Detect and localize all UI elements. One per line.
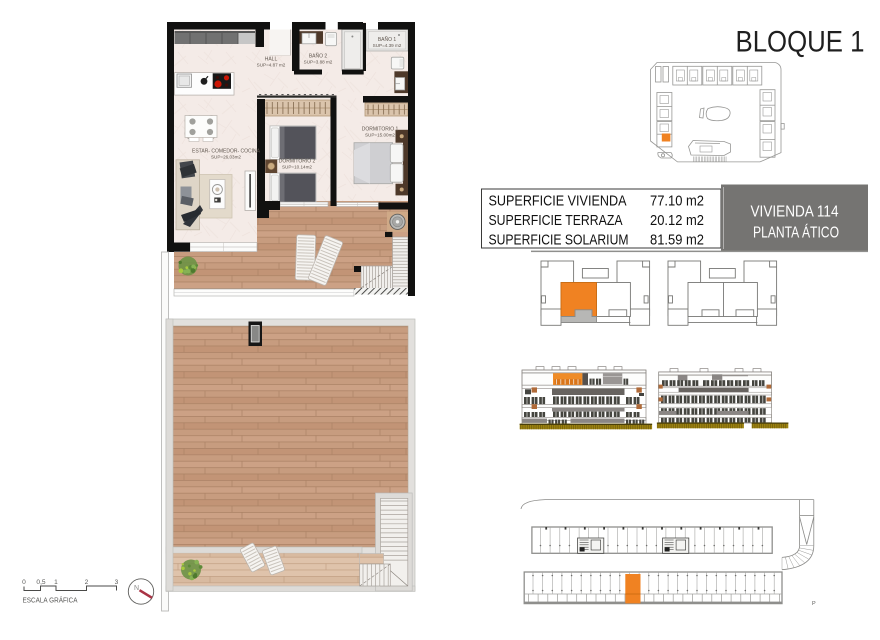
svg-text:PLANTA ÁTICO: PLANTA ÁTICO [753,223,839,242]
svg-text:3: 3 [115,579,119,586]
svg-text:BAÑO 1: BAÑO 1 [378,36,397,43]
svg-text:0,5: 0,5 [36,579,45,586]
svg-text:20.12 m2: 20.12 m2 [650,213,704,229]
svg-text:77.10 m2: 77.10 m2 [650,193,704,209]
svg-text:SUP=4.39 m2: SUP=4.39 m2 [373,43,402,48]
svg-text:0: 0 [22,579,26,586]
svg-text:2: 2 [85,579,89,586]
svg-text:1: 1 [54,579,58,586]
svg-text:SUP=4.87 m2: SUP=4.87 m2 [257,63,286,68]
svg-text:SUP=10.14m2: SUP=10.14m2 [282,165,312,170]
svg-text:P: P [812,601,816,607]
svg-text:SUPERFICIE TERRAZA: SUPERFICIE TERRAZA [489,213,623,229]
svg-text:SUP=3.88 m2: SUP=3.88 m2 [304,60,333,65]
svg-text:SUPERFICIE SOLARIUM: SUPERFICIE SOLARIUM [489,233,629,249]
svg-text:N: N [134,585,139,592]
svg-text:SUP=15.00m2: SUP=15.00m2 [365,133,395,138]
svg-text:SUP=26,03m2: SUP=26,03m2 [211,155,241,160]
svg-text:SUPERFICIE VIVIENDA: SUPERFICIE VIVIENDA [489,193,627,209]
svg-text:ESCALA GRÁFICA: ESCALA GRÁFICA [23,596,78,605]
svg-text:BAÑO 2: BAÑO 2 [309,53,328,60]
svg-text:VIVIENDA 114: VIVIENDA 114 [751,204,839,221]
svg-text:BLOQUE 1: BLOQUE 1 [736,26,865,59]
svg-text:81.59 m2: 81.59 m2 [650,233,704,249]
